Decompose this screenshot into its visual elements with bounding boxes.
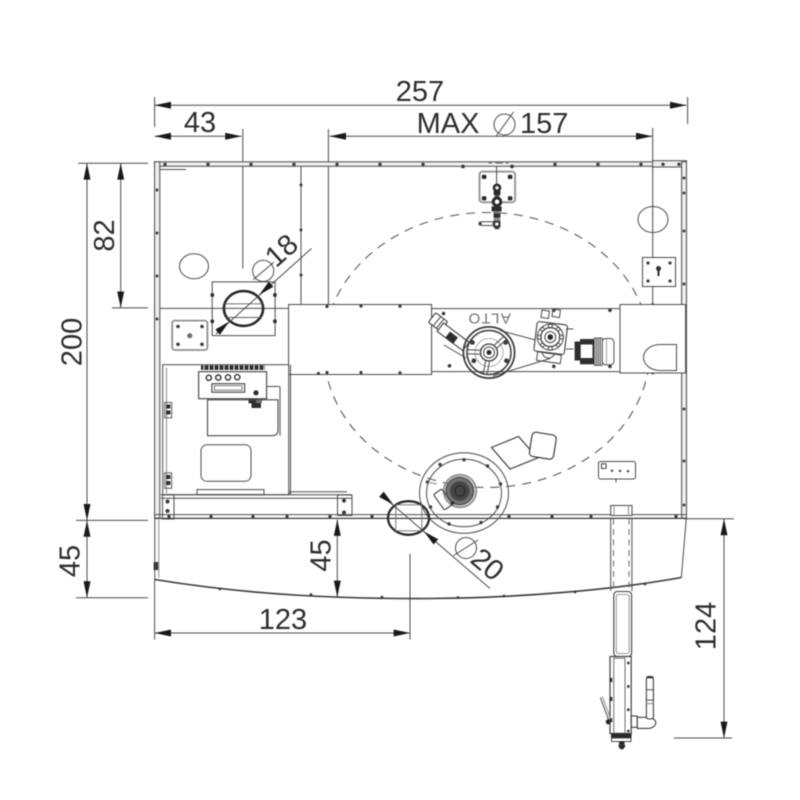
svg-text:45: 45 [306, 539, 338, 571]
svg-text:157: 157 [520, 108, 568, 140]
svg-text:45: 45 [55, 545, 87, 577]
svg-text:200: 200 [57, 318, 89, 366]
svg-text:123: 123 [259, 604, 307, 636]
svg-text:82: 82 [89, 219, 121, 251]
svg-text:MAX: MAX [417, 108, 480, 140]
svg-text:124: 124 [691, 602, 723, 650]
svg-text:257: 257 [396, 76, 444, 108]
svg-text:ALTO: ALTO [467, 310, 511, 327]
svg-text:43: 43 [184, 107, 216, 139]
